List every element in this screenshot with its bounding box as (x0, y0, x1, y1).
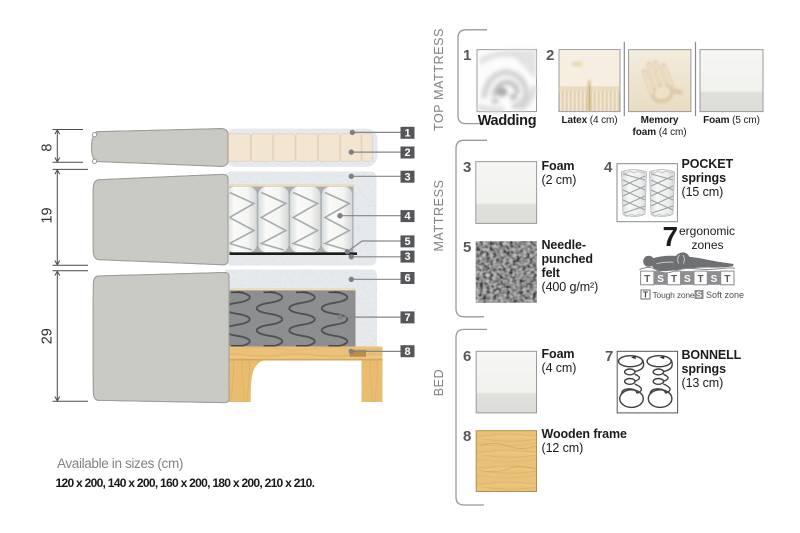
svg-text:T: T (643, 289, 649, 299)
svg-text:T: T (724, 274, 730, 285)
svg-text:8: 8 (404, 346, 410, 358)
svg-text:S: S (657, 274, 664, 285)
svg-text:8: 8 (40, 144, 56, 152)
svg-text:6: 6 (404, 273, 410, 285)
svg-text:3: 3 (404, 171, 410, 183)
svg-text:T: T (644, 274, 650, 285)
svg-text:BED: BED (432, 369, 446, 397)
svg-text:S: S (684, 274, 691, 285)
svg-text:5: 5 (404, 236, 410, 248)
svg-text:T: T (671, 274, 677, 285)
svg-text:T: T (698, 274, 704, 285)
svg-text:4: 4 (404, 211, 411, 223)
svg-text:3: 3 (404, 251, 410, 263)
svg-text:29: 29 (40, 328, 56, 344)
svg-text:7: 7 (404, 312, 410, 324)
svg-text:1: 1 (404, 127, 410, 139)
svg-text:2: 2 (404, 147, 410, 159)
svg-text:MATTRESS: MATTRESS (432, 180, 446, 252)
svg-text:S: S (711, 274, 718, 285)
svg-text:19: 19 (40, 207, 56, 223)
svg-text:S: S (696, 289, 702, 299)
svg-text:TOP MATTRESS: TOP MATTRESS (432, 28, 446, 131)
